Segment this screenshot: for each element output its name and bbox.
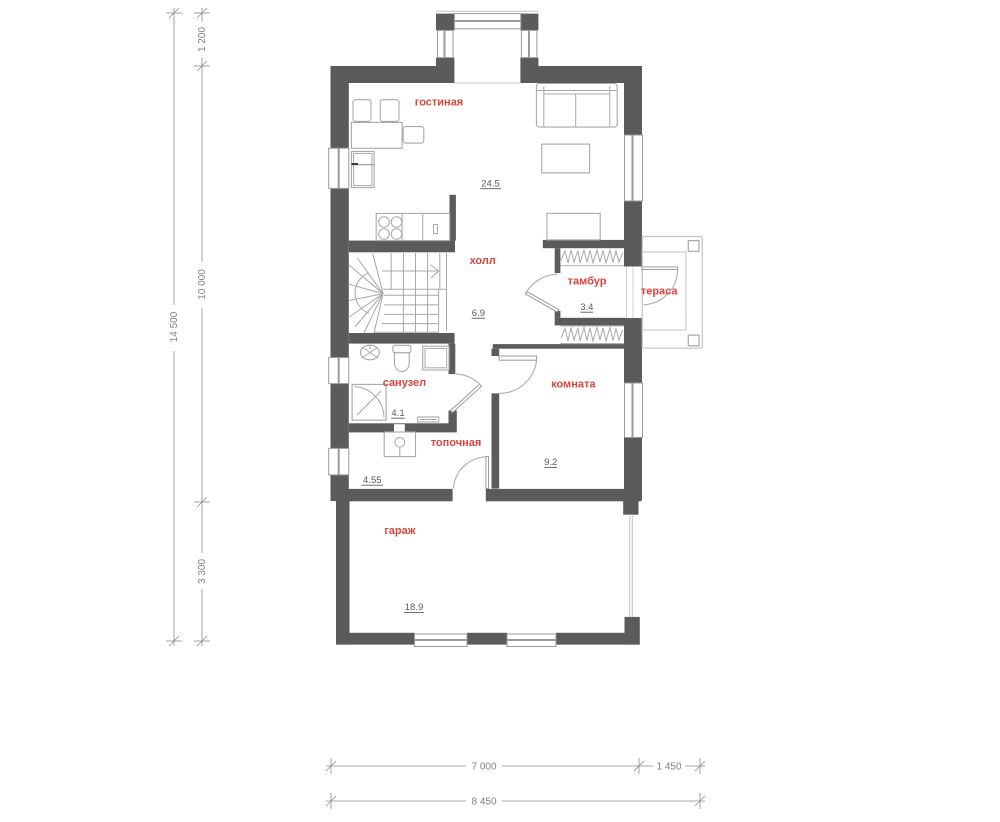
svg-text:1 200: 1 200 [197, 27, 208, 52]
svg-text:комната: комната [551, 379, 596, 391]
svg-text:10 000: 10 000 [197, 269, 208, 300]
svg-text:гостиная: гостиная [415, 97, 463, 109]
svg-text:3 300: 3 300 [197, 559, 208, 584]
svg-text:24.5: 24.5 [481, 179, 500, 190]
svg-text:18.9: 18.9 [405, 602, 424, 613]
svg-text:14 500: 14 500 [169, 311, 180, 342]
svg-text:гараж: гараж [384, 525, 416, 537]
svg-text:тамбур: тамбур [568, 276, 607, 288]
svg-text:топочная: топочная [431, 437, 482, 449]
svg-text:1 450: 1 450 [656, 762, 681, 773]
svg-text:4.55: 4.55 [363, 475, 382, 486]
svg-text:санузел: санузел [383, 377, 426, 389]
svg-text:холл: холл [470, 255, 496, 267]
svg-text:8 450: 8 450 [471, 797, 496, 808]
svg-text:3.4: 3.4 [580, 302, 593, 313]
svg-text:6.9: 6.9 [472, 308, 485, 319]
svg-text:9.2: 9.2 [544, 457, 557, 468]
svg-text:7 000: 7 000 [471, 762, 496, 773]
svg-text:тераса: тераса [641, 286, 679, 298]
svg-text:4.1: 4.1 [391, 408, 404, 419]
